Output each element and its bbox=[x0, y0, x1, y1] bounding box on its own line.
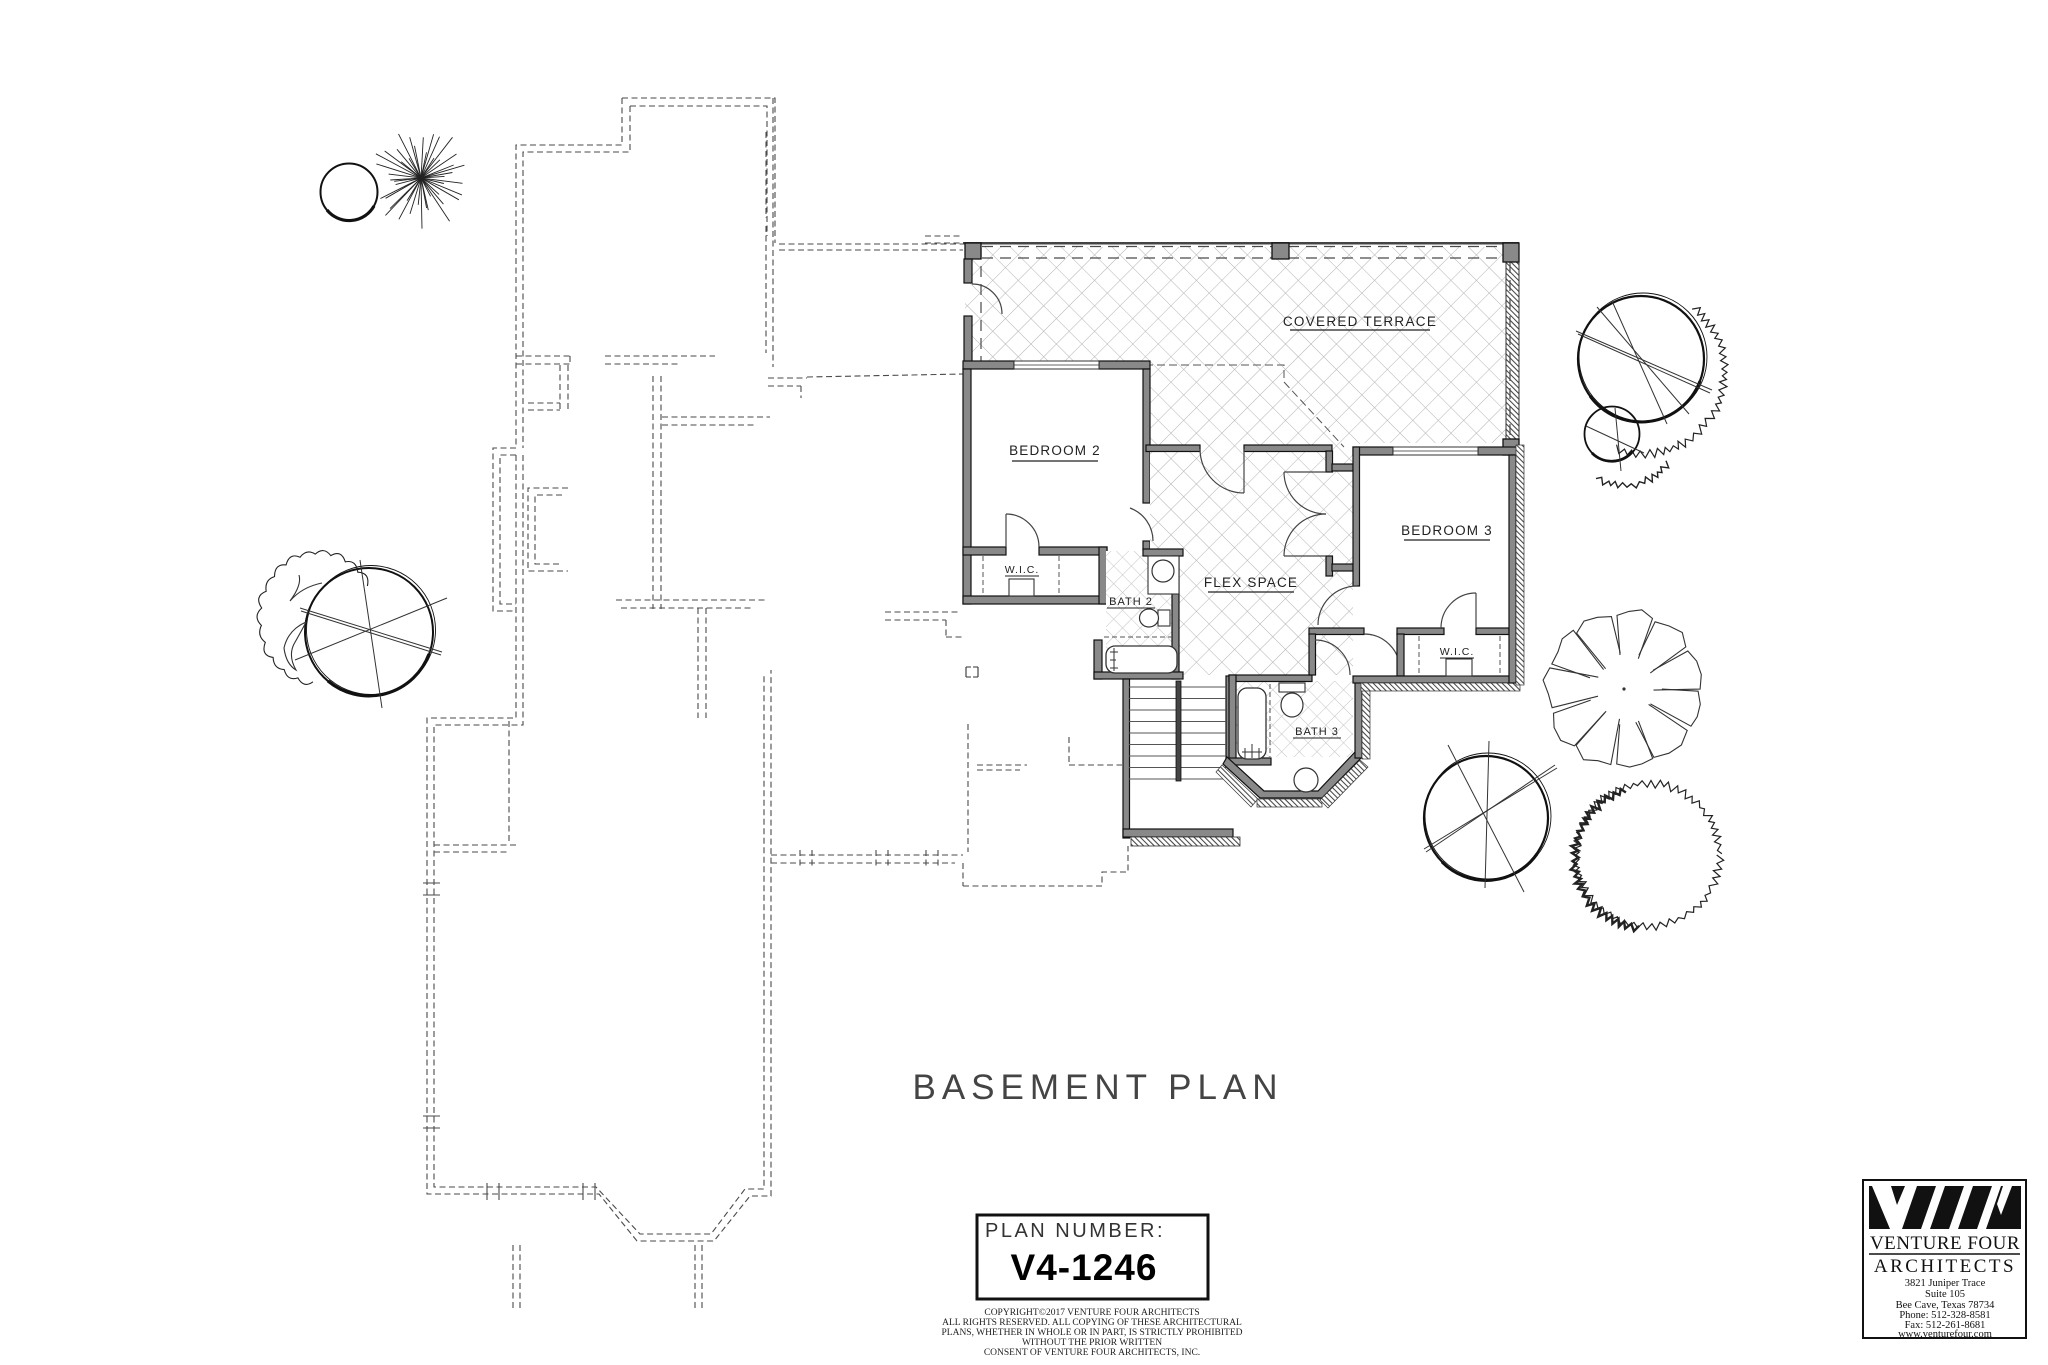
svg-text:BATH 3: BATH 3 bbox=[1295, 726, 1339, 738]
svg-text:VENTURE FOUR: VENTURE FOUR bbox=[1870, 1233, 2020, 1254]
svg-text:COPYRIGHT©2017 VENTURE FOUR AR: COPYRIGHT©2017 VENTURE FOUR ARCHITECTS bbox=[984, 1307, 1199, 1318]
svg-text:www.venturefour.com: www.venturefour.com bbox=[1898, 1329, 1992, 1340]
svg-text:PLANS, WHETHER IN WHOLE OR IN: PLANS, WHETHER IN WHOLE OR IN PART, IS S… bbox=[942, 1328, 1243, 1338]
svg-text:PLAN NUMBER:: PLAN NUMBER: bbox=[985, 1220, 1165, 1242]
svg-text:ALL RIGHTS RESERVED. ALL COPYI: ALL RIGHTS RESERVED. ALL COPYING OF THES… bbox=[942, 1318, 1242, 1328]
svg-text:BATH 2: BATH 2 bbox=[1109, 596, 1153, 608]
svg-text:BEDROOM 2: BEDROOM 2 bbox=[1009, 443, 1101, 458]
svg-text:W.I.C.: W.I.C. bbox=[1005, 564, 1040, 576]
svg-text:Suite 105: Suite 105 bbox=[1925, 1289, 1965, 1300]
svg-text:BASEMENT PLAN: BASEMENT PLAN bbox=[912, 1068, 1283, 1107]
svg-text:CONSENT OF VENTURE FOUR ARCHIT: CONSENT OF VENTURE FOUR ARCHITECTS, INC. bbox=[984, 1348, 1200, 1358]
svg-text:FLEX SPACE: FLEX SPACE bbox=[1204, 575, 1298, 590]
svg-text:WITHOUT THE PRIOR WRITTEN: WITHOUT THE PRIOR WRITTEN bbox=[1022, 1338, 1162, 1348]
svg-text:COVERED TERRACE: COVERED TERRACE bbox=[1283, 314, 1437, 329]
svg-text:3821 Juniper Trace: 3821 Juniper Trace bbox=[1905, 1278, 1986, 1289]
svg-text:W.I.C.: W.I.C. bbox=[1440, 646, 1475, 658]
svg-text:BEDROOM 3: BEDROOM 3 bbox=[1401, 523, 1493, 538]
svg-text:ARCHITECTS: ARCHITECTS bbox=[1874, 1256, 2016, 1277]
svg-text:V4-1246: V4-1246 bbox=[1011, 1247, 1158, 1288]
